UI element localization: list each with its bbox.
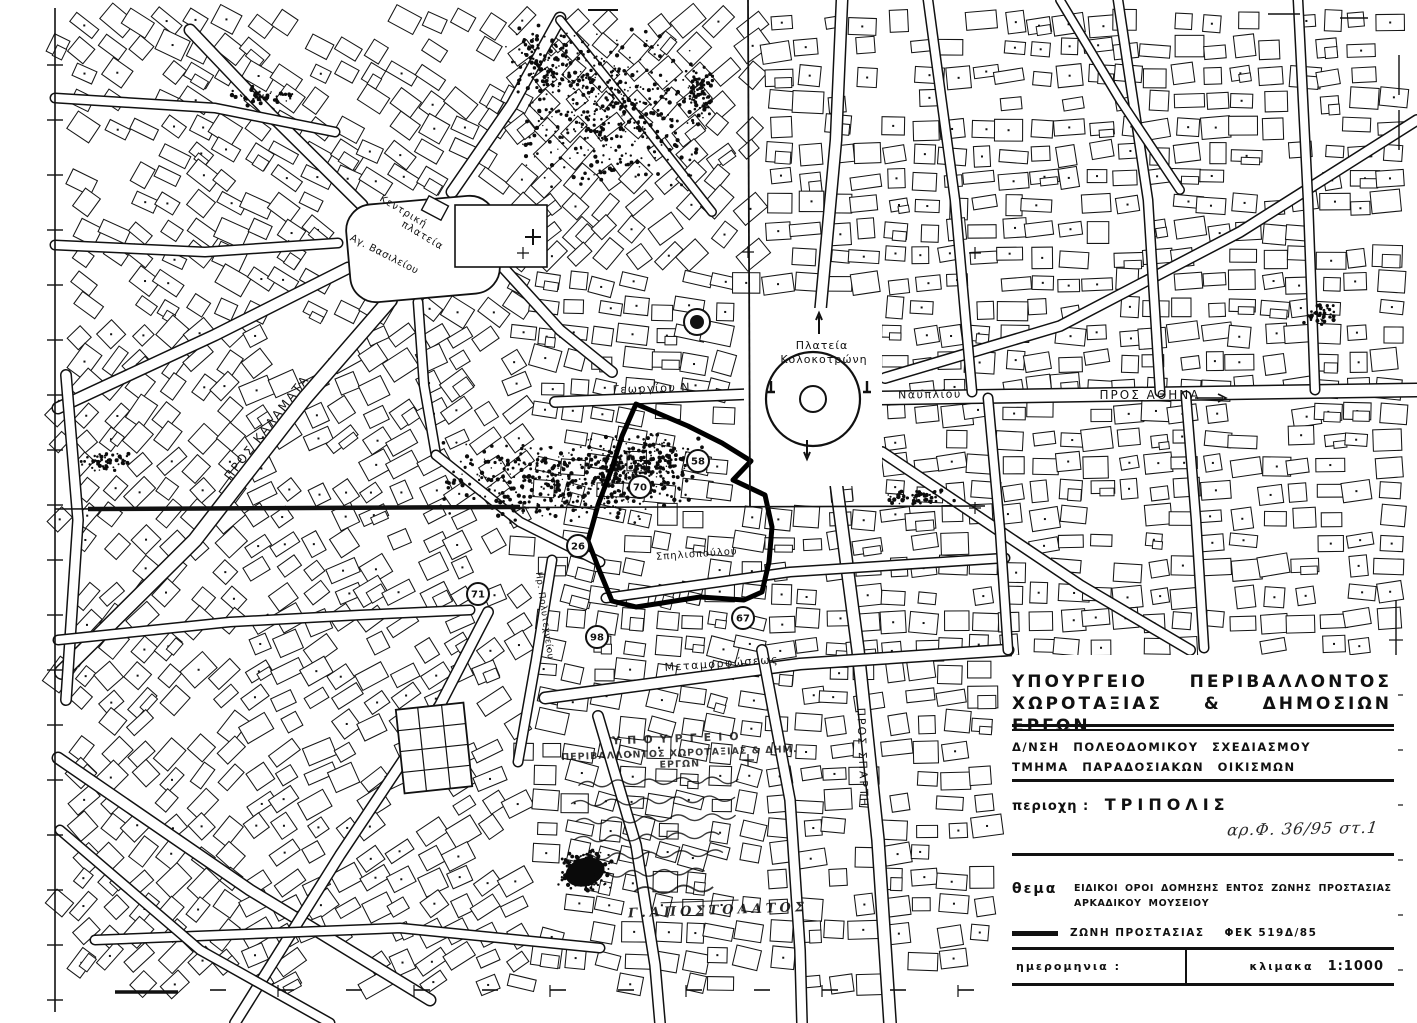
ministry-name: ΥΠΟΥΡΓΕΙΟ ΠΕΡΙΒΑΛΛΟΝΤΟΣ ΧΩΡΟΤΑΞΙΑΣ & ΔΗΜ… bbox=[1012, 671, 1392, 737]
dept-section: ΤΜΗΜΑ ΠΑΡΑΔΟΣΙΑΚΩΝ ΟΙΚΙΣΜΩΝ bbox=[1012, 757, 1392, 777]
subject-label: θεμα bbox=[1012, 881, 1064, 911]
divider-rule bbox=[1012, 724, 1394, 727]
legend-row: ΖΩΝΗ ΠΡΟΣΤΑΣΙΑΣ ΦΕΚ 519Δ/85 bbox=[1012, 927, 1392, 939]
legend-label: ΖΩΝΗ ΠΡΟΣΤΑΣΙΑΣ bbox=[1070, 927, 1205, 939]
scale-cell: κλιμακα 1:1000 bbox=[1249, 959, 1392, 974]
date-scale-row: ημερομηνια : κλιμακα 1:1000 bbox=[1012, 949, 1392, 983]
block-number-text: 98 bbox=[590, 633, 604, 644]
protocol-handwritten-note: αρ.Φ. 36/95 στ.1 bbox=[1010, 818, 1379, 843]
scale-value: 1:1000 bbox=[1328, 959, 1384, 974]
area-row: περιοχη : ΤΡΙΠΟΛΙΣ bbox=[1012, 795, 1392, 814]
area-value: ΤΡΙΠΟΛΙΣ bbox=[1105, 795, 1230, 814]
block-number-text: 70 bbox=[633, 483, 647, 494]
subject-row: θεμα ΕΙΔΙΚΟΙ ΟΡΟΙ ΔΟΜΗΣΗΣ ΕΝΤΟΣ ΖΩΝΗΣ ΠΡ… bbox=[1012, 881, 1392, 911]
divider-rule bbox=[1012, 983, 1394, 986]
map-label-6: Ναυπλίου bbox=[898, 387, 962, 401]
subject-text: ΕΙΔΙΚΟΙ ΟΡΟΙ ΔΟΜΗΣΗΣ ΕΝΤΟΣ ΖΩΝΗΣ ΠΡΟΣΤΑΣ… bbox=[1074, 881, 1392, 911]
block-number-text: 67 bbox=[736, 614, 750, 625]
cell-divider bbox=[1185, 949, 1187, 983]
map-label-7: ΠΡΟΣ ΑΘΗΝΑ bbox=[1100, 388, 1201, 402]
area-label: περιοχη : bbox=[1012, 799, 1089, 814]
department-lines: Δ/ΝΣΗ ΠΟΛΕΟΔΟΜΙΚΟΥ ΣΧΕΔΙΑΣΜΟΥ ΤΜΗΜΑ ΠΑΡΑ… bbox=[1012, 737, 1392, 777]
date-label: ημερομηνια : bbox=[1012, 960, 1121, 973]
title-block: ΥΠΟΥΡΓΕΙΟ ΠΕΡΙΒΑΛΛΟΝΤΟΣ ΧΩΡΟΤΑΞΙΑΣ & ΔΗΜ… bbox=[1012, 655, 1398, 1013]
dept-directorate: Δ/ΝΣΗ ΠΟΛΕΟΔΟΜΙΚΟΥ ΣΧΕΔΙΑΣΜΟΥ bbox=[1012, 737, 1392, 757]
ministry-name-line1: ΥΠΟΥΡΓΕΙΟ ΠΕΡΙΒΑΛΛΟΝΤΟΣ bbox=[1012, 671, 1392, 693]
map-label-4: Κολοκοτρώνη bbox=[780, 353, 867, 366]
legend-gazette-ref: ΦΕΚ 519Δ/85 bbox=[1225, 927, 1318, 939]
map-label-3: Πλατεία bbox=[796, 339, 849, 352]
block-number-text: 71 bbox=[471, 590, 485, 601]
divider-rule bbox=[1012, 853, 1394, 856]
protection-zone-line-swatch bbox=[1012, 931, 1058, 936]
scanned-map-sheet: 587026719867 ΚεντρικήπλατείαΑγ. Βασιλείο… bbox=[0, 0, 1417, 1023]
map-label-11: ΠΡΟΣ ΣΠΑΡΤΗ bbox=[854, 707, 870, 808]
map-label-5: Γεωργίου Ν bbox=[613, 381, 692, 397]
block-number-text: 26 bbox=[571, 542, 585, 553]
grid-building bbox=[396, 703, 472, 794]
block-number-text: 58 bbox=[691, 457, 705, 468]
scale-label: κλιμακα bbox=[1249, 960, 1313, 973]
divider-rule bbox=[1012, 779, 1394, 782]
monument-marker bbox=[684, 309, 710, 335]
divider-rule bbox=[1012, 729, 1394, 731]
kolokotronis-plaza bbox=[744, 308, 882, 486]
